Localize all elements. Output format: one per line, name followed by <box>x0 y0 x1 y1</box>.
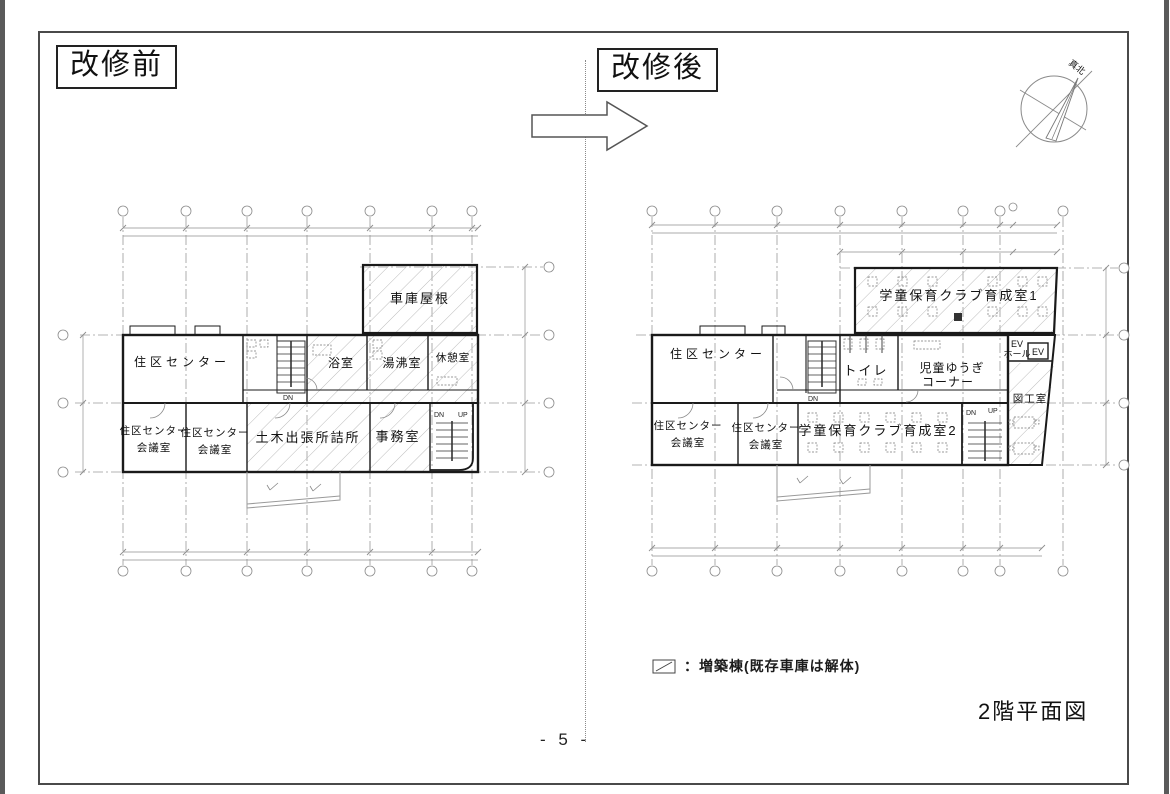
room-label-district-center: 住区センター <box>134 355 230 369</box>
room-label-office: 事務室 <box>375 429 420 444</box>
stairs-middle <box>277 341 305 393</box>
before-title: 改修前 <box>70 49 163 81</box>
stairs-tower-up-label: UP <box>458 412 468 419</box>
stairs-middle-dn-label: DN <box>283 395 293 402</box>
room-label-meeting1-line2: 会議室 <box>137 441 172 454</box>
room-label-rest-room: 休憩室 <box>436 351 471 364</box>
legend-text: ：増築棟(既存車庫は解体) <box>684 656 860 676</box>
room-label-hot-water: 湯沸室 <box>382 355 421 370</box>
transition-arrow-icon <box>524 95 654 157</box>
drawing-title: 2階平面図 <box>978 694 1088 726</box>
room-label-play-corner-line1: 児童ゆうぎ <box>919 360 984 375</box>
canopy-outline <box>247 472 340 508</box>
page-left-border <box>0 0 5 794</box>
room-label-meeting1-line1: 住区センター <box>654 419 723 432</box>
stairs-tower-dn-label: DN <box>966 410 976 417</box>
room-label-ev-hall-line2: ホール <box>1003 349 1030 359</box>
room-label-garage-roof: 車庫屋根 <box>390 291 450 306</box>
stairs-middle-dn-label: DN <box>808 396 818 403</box>
grid-bubbles <box>58 206 554 576</box>
center-divider-line <box>585 60 586 742</box>
stairs-tower-dn-label: DN <box>434 412 444 419</box>
page-right-border <box>1164 0 1169 794</box>
room-label-meeting1-line1: 住区センター <box>120 424 189 437</box>
room-label-civil-office: 土木出張所詰所 <box>255 430 360 445</box>
after-title: 改修後 <box>611 52 704 84</box>
canopy-outline <box>777 465 870 501</box>
room-label-craft-room: 図工室 <box>1013 392 1048 405</box>
room-label-meeting2-line2: 会議室 <box>749 438 784 451</box>
true-north-label: 真北 <box>1067 57 1088 77</box>
room-label-meeting2-line1: 住区センター <box>181 426 250 439</box>
room-label-gakudo1: 学童保育クラブ育成室1 <box>879 288 1038 303</box>
room-label-ev-hall-line1: EV <box>1011 339 1023 349</box>
before-floor-plan: DN DN UP 住区センター 浴室 湯沸室 休憩室 車庫屋根 住区センター 会… <box>55 195 565 587</box>
room-label-ev: EV <box>1032 347 1044 357</box>
north-compass-icon: 真北 <box>1006 48 1121 163</box>
annex-hatch-symbol-icon <box>652 659 676 674</box>
stairs-tower-up-label: UP <box>988 408 998 415</box>
after-title-box: 改修後 <box>597 48 718 92</box>
before-title-box: 改修前 <box>56 45 177 89</box>
room-label-bathroom: 浴室 <box>328 355 354 370</box>
room-label-meeting1-line2: 会議室 <box>671 436 706 449</box>
room-label-play-corner-line2: コーナー <box>922 375 974 389</box>
room-label-district-center: 住区センター <box>670 347 766 361</box>
page-number: - 5 - <box>540 730 590 750</box>
room-label-meeting2-line1: 住区センター <box>732 421 801 434</box>
room-label-meeting2-line2: 会議室 <box>198 443 233 456</box>
room-label-toilet: トイレ <box>843 363 888 378</box>
legend: ：増築棟(既存車庫は解体) <box>652 656 860 676</box>
after-floor-plan: DN DN UP <box>618 195 1158 587</box>
room-label-gakudo2: 学童保育クラブ育成室2 <box>798 423 957 438</box>
stairs-middle <box>808 341 836 393</box>
